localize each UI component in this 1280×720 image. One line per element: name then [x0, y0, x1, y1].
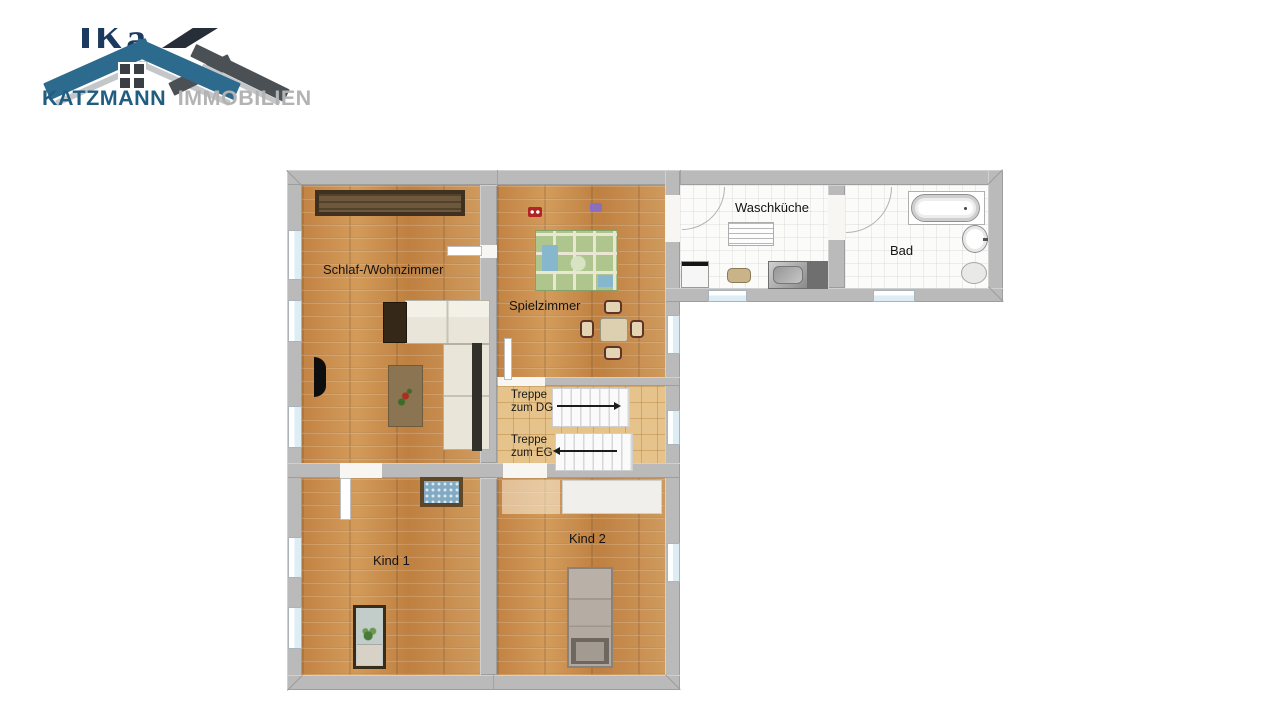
bed-pillow — [576, 642, 604, 661]
bathroom-sink — [962, 225, 988, 253]
play-mat — [535, 230, 618, 291]
window-waschkueche — [708, 290, 747, 302]
room-label-bad: Bad — [890, 243, 913, 258]
logo-wordmark: KATZMANN IMMOBILIEN — [42, 86, 312, 111]
stair-arrow-down-head — [553, 447, 560, 455]
watermark-fragment-bar — [82, 28, 89, 48]
stair-label-dg-line2: zum DG — [511, 402, 553, 415]
room-floor-kind-1 — [302, 478, 480, 675]
wall-seam — [680, 170, 681, 185]
stair-label-eg-line1: Treppe — [511, 434, 553, 447]
bed-headboard — [571, 638, 609, 664]
window-pane — [134, 64, 144, 74]
play-table — [600, 318, 628, 342]
logo-company-name: KATZMANN — [42, 86, 166, 110]
bed — [567, 567, 613, 668]
sofa-backrest — [472, 343, 482, 451]
sink-basin — [773, 266, 803, 284]
stair-label-eg: Treppe zum EG — [511, 434, 553, 460]
stair-arrow-down-line — [560, 450, 617, 452]
rug-blue — [420, 477, 463, 507]
wall-outer-bottom — [287, 675, 680, 690]
stair-label-dg: Treppe zum DG — [511, 389, 553, 415]
watermark-fragment-wedge — [162, 28, 218, 48]
sofa-vertical — [443, 344, 490, 450]
stair-label-eg-line2: zum EG — [511, 447, 553, 460]
stair-flight-down — [555, 433, 633, 471]
door-leaf-kind-1 — [340, 478, 351, 520]
counter — [808, 261, 828, 289]
chair-east — [630, 320, 644, 338]
utility-sink — [768, 261, 808, 289]
side-cabinet — [383, 302, 407, 343]
floorplan-page: { "logo": { "company": "KATZMANN", "suff… — [0, 0, 1280, 720]
toy-purple — [590, 203, 602, 212]
sofa-horizontal — [405, 300, 490, 344]
terrarium — [353, 605, 386, 669]
chair-west — [580, 320, 594, 338]
window-left-4 — [288, 537, 302, 578]
window-left-1 — [288, 230, 302, 280]
window-left-3 — [288, 406, 302, 448]
wall-seam — [497, 170, 498, 185]
washing-machine — [681, 261, 709, 288]
built-in-closet — [562, 480, 662, 514]
bathtub-frame — [908, 191, 985, 225]
wall-wing-right — [988, 170, 1003, 302]
window-right-2 — [667, 410, 680, 445]
stair-arrow-up-head — [614, 402, 621, 410]
bathtub — [911, 194, 980, 222]
drying-rack — [728, 222, 774, 246]
window-left-5 — [288, 607, 302, 649]
utility-sink-unit — [768, 261, 828, 289]
wall-wing-top — [680, 170, 1003, 185]
stair-arrow-up-line — [557, 405, 614, 407]
door-opening-stairs-kind-2 — [503, 463, 547, 478]
door-opening-bad — [828, 195, 845, 240]
window-right-1 — [667, 315, 680, 354]
toilet — [961, 262, 987, 284]
door-leaf-schlaf — [447, 246, 482, 256]
laundry-basket — [727, 268, 751, 283]
terrarium-base — [357, 644, 382, 665]
door-opening-schlaf-spiel — [480, 245, 497, 258]
room-label-schlaf-wohnzimmer: Schlaf-/Wohnzimmer — [323, 262, 443, 277]
bathtub-drain — [964, 207, 967, 210]
window-bad — [873, 290, 915, 302]
wall-divider-lower — [480, 478, 497, 675]
room-label-kind-2: Kind 2 — [569, 531, 606, 546]
room-label-kind-1: Kind 1 — [373, 553, 410, 568]
landing-area — [502, 480, 560, 514]
wall-decor-half-disc — [314, 357, 326, 397]
washing-machine-panel — [682, 262, 708, 266]
rug — [388, 365, 423, 427]
toy-red — [528, 207, 542, 217]
wardrobe — [315, 190, 465, 216]
sink-tap — [983, 238, 988, 241]
window-pane — [120, 64, 130, 74]
door-opening-kind-1 — [340, 463, 382, 478]
room-label-waschkueche: Waschküche — [735, 200, 809, 215]
wall-outer-top — [287, 170, 680, 185]
door-leaf-spielzimmer — [504, 338, 512, 380]
window-left-2 — [288, 300, 302, 342]
stair-label-dg-line1: Treppe — [511, 389, 553, 402]
wall-seam — [493, 675, 494, 690]
room-label-spielzimmer: Spielzimmer — [509, 298, 581, 313]
company-logo: Ka KATZMANN IMMOBILIEN — [30, 20, 310, 120]
door-opening-waschkueche — [665, 195, 680, 242]
chair-north — [604, 300, 622, 314]
logo-company-suffix: IMMOBILIEN — [178, 86, 312, 110]
floor-plan: Schlaf-/Wohnzimmer Spielzimmer Waschküch… — [287, 170, 1003, 690]
chair-south — [604, 346, 622, 360]
window-right-3 — [667, 543, 680, 582]
